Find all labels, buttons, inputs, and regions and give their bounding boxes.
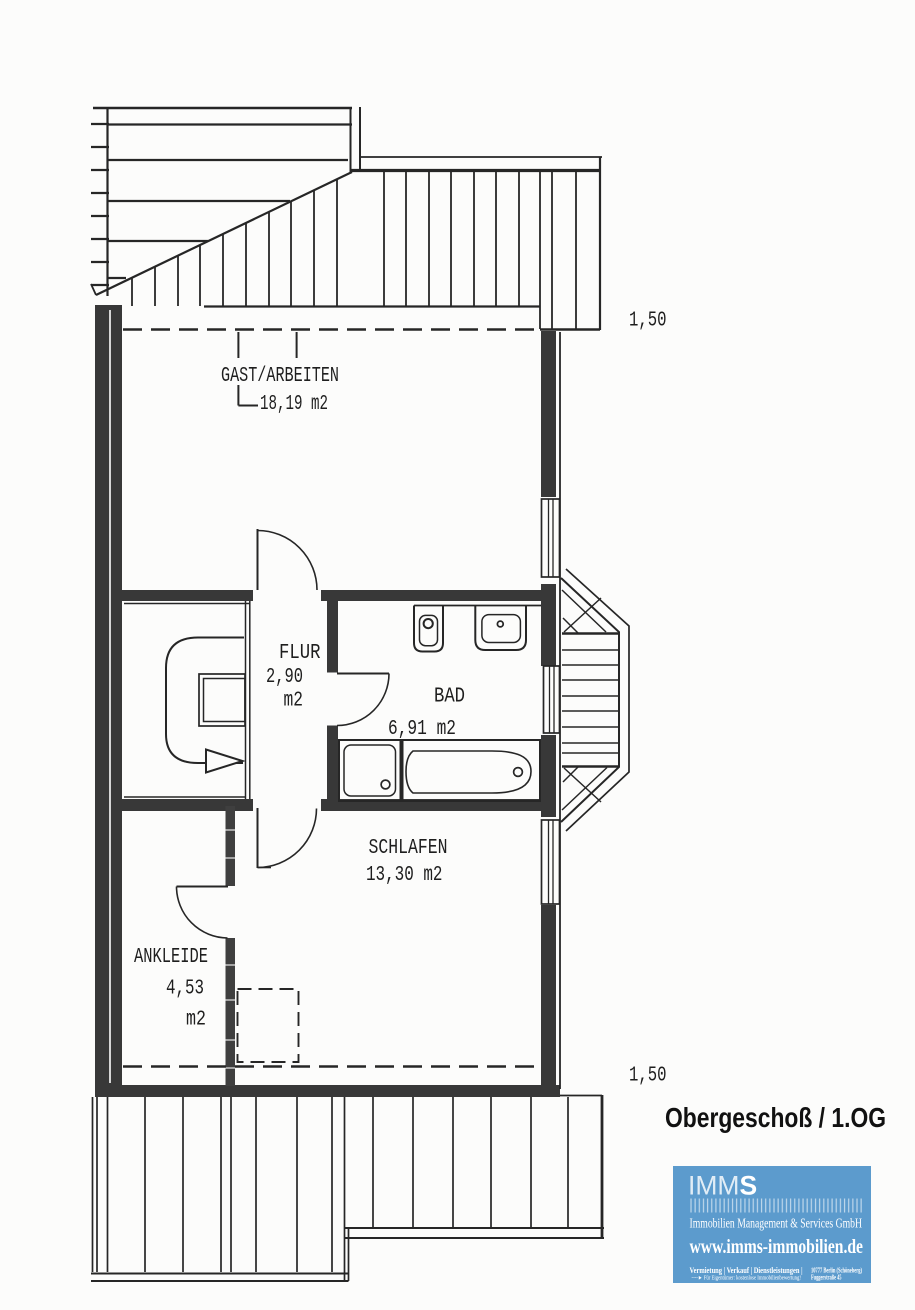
svg-text:1,50: 1,50: [629, 1065, 667, 1088]
svg-text:6,91 m2: 6,91 m2: [388, 718, 456, 741]
svg-text:m2: m2: [284, 690, 304, 713]
svg-text:m2: m2: [186, 1009, 206, 1032]
svg-text:Obergeschoß / 1.OG: Obergeschoß / 1.OG: [665, 1102, 886, 1133]
svg-text:13,30 m2: 13,30 m2: [366, 864, 443, 887]
svg-text:ANKLEIDE: ANKLEIDE: [134, 946, 208, 969]
svg-text:www.imms-immobilien.de: www.imms-immobilien.de: [690, 1237, 864, 1258]
svg-text:GAST/ARBEITEN: GAST/ARBEITEN: [221, 365, 339, 388]
svg-text:FLUR: FLUR: [279, 642, 321, 665]
svg-text:SCHLAFEN: SCHLAFEN: [369, 837, 448, 860]
svg-text:2,90: 2,90: [266, 666, 303, 689]
svg-text:----► Für Eigentümer: kostenlo: ----► Für Eigentümer: kostenlose Immobil…: [692, 1276, 802, 1282]
svg-text:Vermietung | Verkauf | Dienstl: Vermietung | Verkauf | Dienstleistungen …: [690, 1265, 803, 1275]
svg-text:IMMS: IMMS: [688, 1171, 757, 1201]
svg-text:Fuggerstraße 45: Fuggerstraße 45: [811, 1274, 842, 1282]
svg-text:18,19 m2: 18,19 m2: [260, 393, 328, 416]
svg-text:4,53: 4,53: [166, 978, 204, 1001]
svg-text:1,50: 1,50: [629, 310, 667, 333]
svg-text:Immobilien Management & Servic: Immobilien Management & Services GmbH: [690, 1216, 863, 1231]
svg-text:BAD: BAD: [434, 686, 465, 709]
